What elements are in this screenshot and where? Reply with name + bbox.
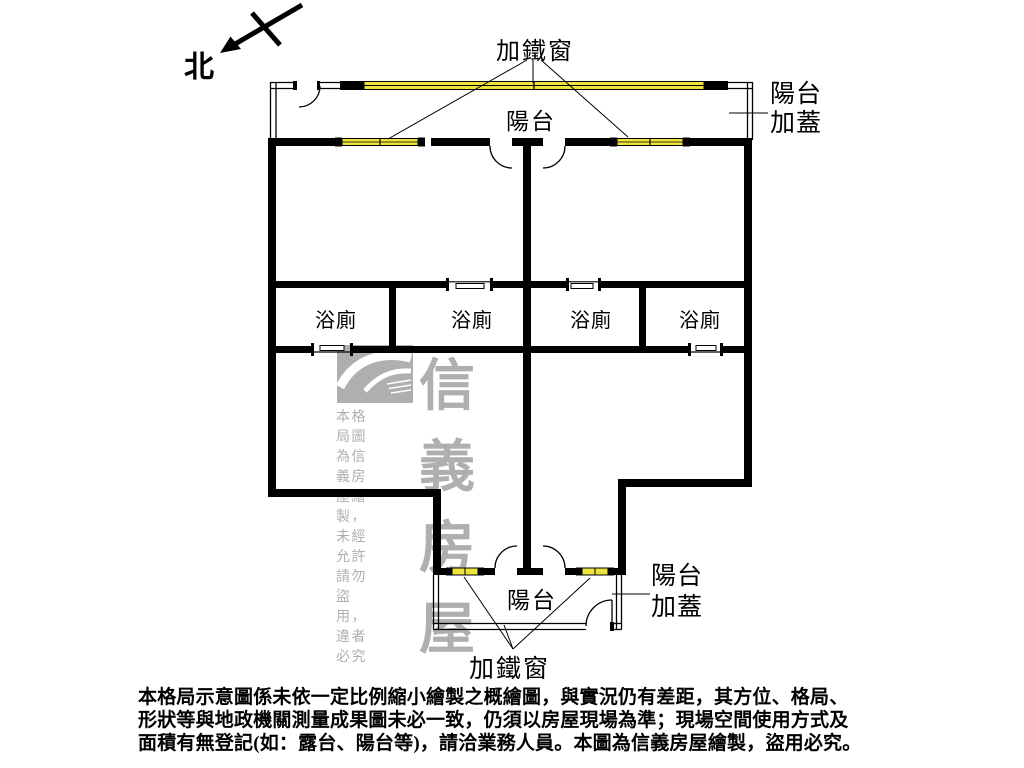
exterior-walls [268, 138, 752, 575]
label-bottom-balcony: 陽台 [507, 581, 557, 615]
label-top-balcony: 陽台 [506, 102, 556, 136]
center-spine-wall [523, 146, 531, 568]
label-bottom-balcony-cover-line2: 加蓋 [651, 592, 703, 623]
label-bottom-balcony-cover: 陽台 加蓋 [651, 561, 703, 623]
bottom-balcony-door [586, 600, 614, 631]
iron-window-top-outer [340, 81, 728, 90]
disclaimer-line-3: 面積有無登記(如：露台、陽台等)，請洽業務人員。本圖為信義房屋繪製，盜用必究。 [138, 732, 898, 755]
label-bathroom-2: 浴廁 [442, 304, 502, 333]
iron-window-bottom-right [576, 568, 614, 576]
label-bathroom-1: 浴廁 [306, 304, 366, 333]
top-balcony-door [293, 81, 320, 107]
floorplan-page: 信義房屋 本格局圖為信義房屋繪製，未經允許請勿盜用，違者必究 [0, 0, 1024, 768]
compass-north-label: 北 [184, 42, 214, 86]
iron-window-top-right [610, 138, 690, 147]
label-top-balcony-cover-line2: 加蓋 [770, 109, 822, 138]
disclaimer-text: 本格局示意圖係未依一定比例縮小繪製之概繪圖，與實況仍有差距，其方位、格局、 形狀… [138, 686, 898, 755]
iron-window-top-left [335, 138, 425, 147]
label-bathroom-4: 浴廁 [670, 304, 730, 333]
iron-window-bottom-left [446, 568, 484, 576]
label-bottom-balcony-cover-line1: 陽台 [651, 561, 703, 592]
disclaimer-line-1: 本格局示意圖係未依一定比例縮小繪製之概繪圖，與實況仍有差距，其方位、格局、 [138, 686, 898, 709]
bathroom-sliding-doors [314, 282, 720, 352]
label-bottom-iron-window: 加鐵窗 [469, 649, 550, 685]
north-arrow-icon [220, 5, 302, 53]
disclaimer-line-2: 形狀等與地政機關測量成果圖未必一致，仍須以房屋現場為準；現場空間使用方式及 [138, 709, 898, 732]
leader-lines [388, 60, 768, 649]
label-bathroom-3: 浴廁 [561, 304, 621, 333]
label-top-balcony-cover-line1: 陽台 [770, 80, 822, 109]
label-top-iron-window: 加鐵窗 [496, 31, 574, 66]
label-top-balcony-cover: 陽台 加蓋 [770, 80, 822, 138]
